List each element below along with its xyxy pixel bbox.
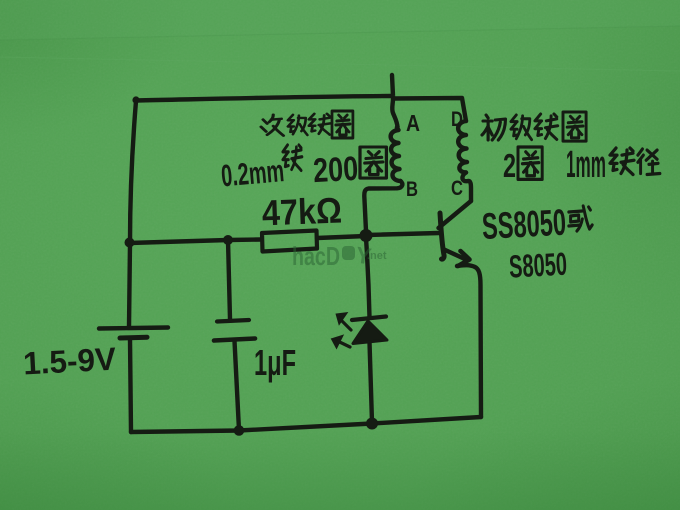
- svg-text:2: 2: [503, 147, 516, 184]
- svg-text:hacD: hacD: [292, 241, 340, 271]
- svg-text:D: D: [451, 108, 463, 131]
- svg-text:B: B: [406, 178, 418, 201]
- svg-text:1mm: 1mm: [566, 144, 606, 186]
- svg-text:S8050: S8050: [508, 246, 568, 285]
- svg-text:C: C: [451, 177, 463, 200]
- svg-text:1μF: 1μF: [254, 342, 296, 383]
- svg-text:0.2mm: 0.2mm: [220, 153, 286, 193]
- svg-text:.net: .net: [367, 250, 387, 262]
- svg-text:1.5-9V: 1.5-9V: [22, 341, 117, 382]
- svg-text:47kΩ: 47kΩ: [261, 190, 342, 234]
- svg-text:200: 200: [312, 150, 359, 190]
- svg-text:SS8050: SS8050: [481, 202, 567, 247]
- svg-text:A: A: [406, 110, 420, 136]
